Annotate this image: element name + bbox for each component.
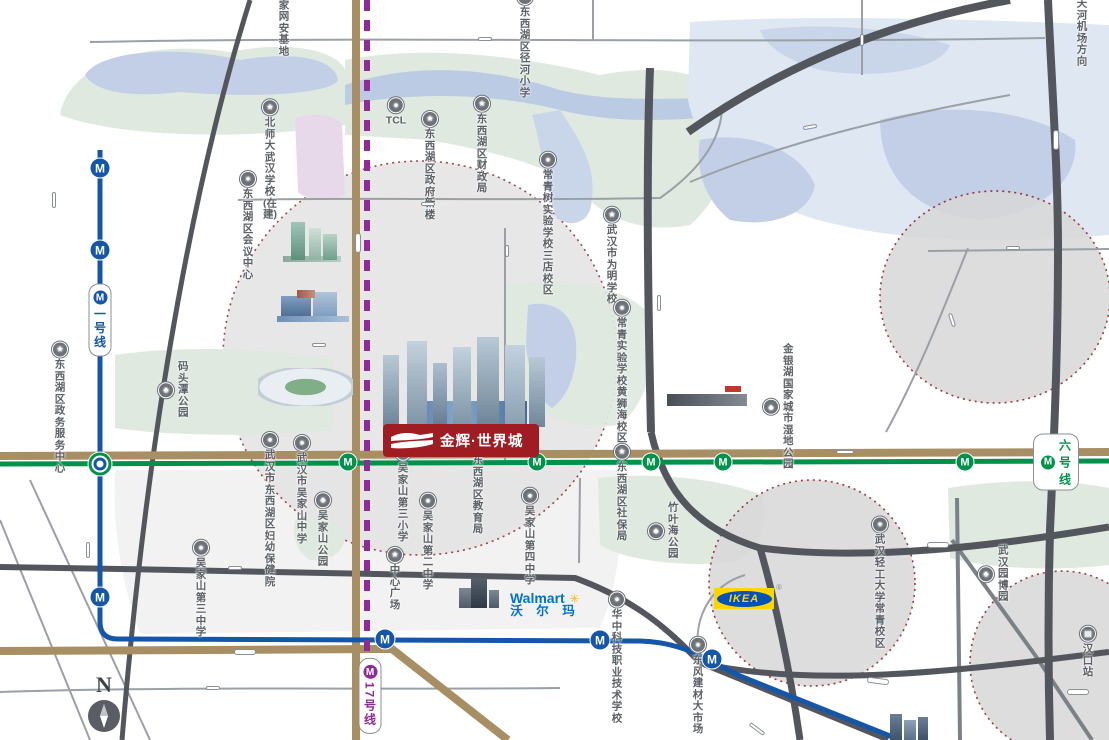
poi-label: 武汉园博园: [998, 545, 1009, 603]
poi-label: 北师大武汉学校 (在建): [262, 117, 278, 221]
metro-m-glyph: M: [95, 243, 105, 257]
metro-station-icon: M: [643, 454, 660, 471]
metro-line-name: 一号线: [92, 308, 109, 350]
poi: ★ 东西湖区社保局: [614, 444, 630, 543]
poi-label: 吴家山公园: [315, 510, 331, 568]
road-label: [1067, 689, 1089, 695]
poi-label: 中心广场: [387, 565, 403, 611]
metro-m-glyph: M: [532, 456, 541, 468]
star-icon: ★: [604, 207, 620, 223]
poi: ● 东西湖区径河小学: [517, 0, 533, 99]
poi: ★ 武汉市为明学校: [604, 207, 620, 306]
metro-station-icon: M: [340, 454, 357, 471]
poi-label: 东风建材大市场: [690, 655, 706, 736]
metro-m-glyph: M: [718, 456, 727, 468]
metro-m-glyph: M: [646, 456, 655, 468]
research-zone-pink: [295, 115, 345, 199]
project-name: 金辉·世界城: [440, 430, 523, 451]
road-label: [312, 343, 326, 347]
road-label: [860, 34, 864, 46]
poi-label: 吴家山第二中学: [420, 511, 436, 592]
school-icon: ●: [517, 0, 533, 5]
poi: ✈ 天河机场方向: [1074, 0, 1090, 68]
star-icon: ★: [262, 99, 278, 115]
culture-center-3d-image: [277, 288, 349, 322]
metro-m-glyph: M: [343, 456, 352, 468]
poi-label: 华中科技职业技术学校: [609, 610, 625, 725]
star-icon: ★: [422, 111, 438, 127]
metro-m-glyph: M: [380, 632, 390, 646]
compass-needle-icon: [88, 700, 120, 732]
train-icon: ▤: [1080, 626, 1096, 642]
tree-icon: ♣: [648, 523, 664, 539]
poi: ● 常青实验学校 黄狮海校区: [614, 300, 630, 445]
school-icon: ●: [522, 488, 538, 504]
metro-station-icon: M: [91, 588, 110, 607]
metro-line-label: M 一号线: [89, 284, 112, 357]
metro-m-icon: M: [363, 665, 377, 679]
school-icon: ●: [294, 435, 310, 451]
poi: ● 华中科技职业技术学校: [609, 592, 625, 725]
metro-line-name: 六号线: [1059, 437, 1071, 488]
project-logo: 金辉·世界城: [383, 424, 539, 457]
school-icon: ●: [193, 540, 209, 556]
poi: ● 吴家山第三小学: [395, 445, 411, 544]
poi: ● 吴家山第二中学: [420, 493, 436, 592]
poi-label: 东西湖区社保局: [614, 462, 630, 543]
building-icon: ●: [240, 171, 256, 187]
metro-station-icon: M: [89, 453, 112, 476]
road-label: [1053, 130, 1059, 150]
road-label: [836, 450, 854, 454]
poi: ● 武汉市吴家山中学: [294, 435, 310, 545]
ikea-registered-mark: ®: [776, 583, 782, 592]
star-icon: ★: [52, 342, 68, 358]
poi: ▤ 汉口站: [1080, 626, 1096, 679]
wetland-lake: [85, 52, 338, 95]
metro-line-label: M 六号线: [1033, 434, 1079, 491]
road-label: [505, 245, 509, 257]
poi-label: 金银湖国家城市湿地公园: [783, 344, 794, 471]
poi-label: 国家网安基地: [276, 0, 292, 58]
metro-m-icon: M: [93, 291, 107, 305]
poi: ★ 国家网安基地: [276, 0, 292, 58]
road-label: [52, 192, 56, 208]
poi-label: 常青树实验学校 三店校区: [540, 170, 556, 297]
metro-m-glyph: M: [595, 633, 605, 647]
poi-label: 吴家山第三中学: [193, 558, 209, 639]
poi-label: 东西湖区财政局: [474, 114, 490, 195]
garden-expo-park: [948, 481, 1109, 568]
poi: ● 东西湖区会议中心: [240, 171, 256, 281]
project-towers-3d-image: [377, 337, 563, 428]
poi: ♣ 码头潭公园: [158, 361, 189, 419]
star-icon: ★: [387, 547, 403, 563]
metro-station-icon: M: [591, 631, 610, 650]
building-icon: ●: [388, 97, 404, 113]
star-icon: ★: [614, 444, 630, 460]
poi: ♣ 吴家山公园: [315, 492, 331, 568]
poi: ● 东风建材大市场: [690, 637, 706, 736]
road-label: [234, 649, 256, 655]
road-label: [355, 233, 361, 253]
poi-label: 武汉市吴家山中学: [294, 453, 310, 545]
road-label: [421, 202, 435, 206]
poi-label: 吴家山第四中学: [522, 506, 538, 587]
ikea-logo: IKEA ®: [714, 588, 774, 609]
school-icon: ●: [614, 300, 630, 316]
tree-icon: ♣: [158, 382, 174, 398]
metro-station-icon: M: [957, 454, 974, 471]
poi: ● 吴家山第三中学: [193, 540, 209, 639]
ikea-wordmark: IKEA: [729, 593, 759, 605]
metro-m-glyph: M: [95, 161, 105, 175]
poi: ★ 东西湖区政务 服务中心: [52, 342, 68, 475]
poi: ● 武汉轻工大学常青校区: [872, 517, 888, 650]
wanda-plaza-3d-image: [667, 386, 747, 408]
tree-icon: ♣: [315, 492, 331, 508]
poi: ♣ 竹叶海公园: [648, 502, 679, 560]
star-icon: ★: [474, 96, 490, 112]
compass: N: [88, 672, 120, 732]
metro-m-glyph: M: [960, 456, 969, 468]
poi: ♣ 金银湖国家城市湿地公园: [763, 344, 794, 471]
tree-icon: ♣: [763, 399, 779, 415]
poi-label: 竹叶海公园: [668, 502, 679, 560]
ikea-oval: IKEA: [717, 591, 772, 607]
metro-station-icon: M: [715, 454, 732, 471]
walmart-logo: Walmart ✳ 沃 尔 玛: [510, 592, 580, 618]
road-label: [927, 542, 949, 548]
metro-station-icon: M: [703, 650, 722, 669]
hospital-3d-image: [283, 220, 341, 262]
poi: ● 常青树实验学校 三店校区: [540, 152, 556, 297]
poi: ● 武汉市东西湖区 妇幼保健院: [262, 432, 278, 588]
poi-label: 东西湖区政府新楼: [422, 129, 438, 221]
metro-m-glyph: M: [95, 590, 105, 604]
compass-north-label: N: [88, 672, 120, 698]
poi-label: 武汉市为明学校: [604, 225, 620, 306]
metro-station-icon: M: [91, 241, 110, 260]
poi-label: 常青实验学校 黄狮海校区: [614, 318, 630, 445]
hospital-icon: ●: [262, 432, 278, 448]
poi: ● TCL: [386, 97, 406, 127]
school-icon: ●: [540, 152, 556, 168]
poi-label: 天河机场方向: [1074, 0, 1090, 68]
school-icon: ●: [872, 517, 888, 533]
poi-label: 东西湖区会议中心: [240, 189, 256, 281]
poi: ★ 北师大武汉学校 (在建): [262, 99, 278, 221]
metro-line-6: [0, 461, 1109, 464]
school-icon: ●: [609, 592, 625, 608]
hailin-plaza-3d-image: [455, 578, 501, 608]
building-icon: ●: [690, 637, 706, 653]
poi-label: 东西湖区教育局: [470, 455, 486, 536]
walmart-chinese-name: 沃 尔 玛: [510, 605, 580, 618]
metro-m-icon: M: [1041, 455, 1055, 469]
poi-label: 码头潭公园: [178, 361, 189, 419]
towers-3d-image: [886, 712, 930, 740]
poi-label: 汉口站: [1080, 644, 1096, 679]
road-label: [86, 542, 90, 558]
poi: ★ 中心广场: [387, 547, 403, 611]
aeon-circle: [880, 191, 1109, 403]
metro-line-label: M 17号线: [359, 658, 382, 734]
map-canvas: ★ 国家网安基地 ★ 北师大武汉学校 (在建) ● TCL ● 东西湖区径河小学…: [0, 0, 1109, 740]
road-label: [206, 686, 220, 690]
metro-m-glyph: M: [707, 652, 717, 666]
metro-station-icon: M: [91, 159, 110, 178]
project-wave-icon: [390, 431, 434, 451]
road-label: [1006, 246, 1020, 250]
poi: ● 吴家山第四中学: [522, 488, 538, 587]
poi-label: 吴家山第三小学: [395, 463, 411, 544]
poi-label: 武汉轻工大学常青校区: [872, 535, 888, 650]
metro-line-name: 17号线: [362, 682, 379, 727]
road-label: [657, 295, 661, 311]
school-icon: ●: [420, 493, 436, 509]
poi: ★ 东西湖区财政局: [474, 96, 490, 195]
poi-label: 武汉市东西湖区 妇幼保健院: [262, 450, 278, 588]
poi-label: 东西湖区径河小学: [517, 7, 533, 99]
road-label: [478, 37, 492, 41]
poi-label: 东西湖区政务 服务中心: [52, 360, 68, 475]
poi-label: TCL: [386, 115, 406, 127]
metro-station-icon: M: [376, 630, 395, 649]
tree-icon: ♣: [978, 566, 994, 582]
poi: ♣ 武汉园博园: [978, 545, 1009, 603]
stadium-3d-image: [258, 368, 353, 406]
road-label: [228, 566, 242, 570]
